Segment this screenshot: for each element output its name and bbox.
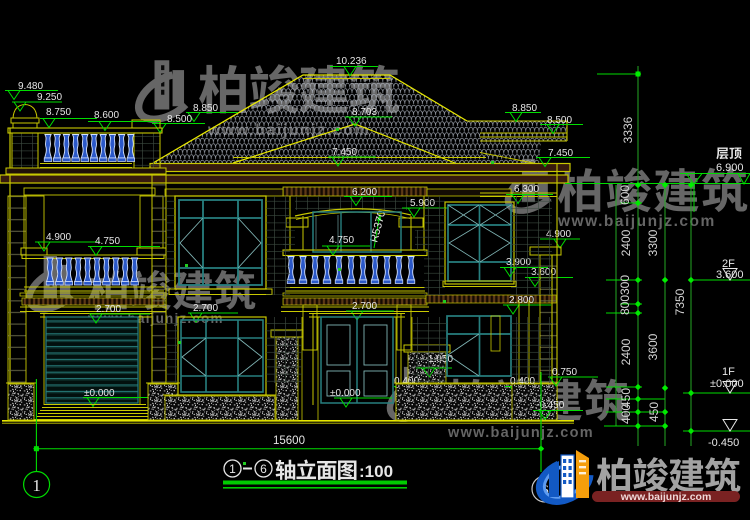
svg-text:2.800: 2.800 (509, 295, 534, 306)
svg-text:±0.000: ±0.000 (84, 388, 115, 399)
svg-text:9.250: 9.250 (37, 92, 62, 103)
svg-text:±0.000: ±0.000 (710, 378, 744, 390)
svg-text:2.700: 2.700 (96, 304, 121, 315)
svg-text:2.700: 2.700 (352, 301, 377, 312)
svg-text:3.600: 3.600 (716, 269, 744, 281)
svg-text:±0.000: ±0.000 (330, 388, 361, 399)
svg-text:1: 1 (229, 462, 236, 476)
svg-text:www.baijunjz.com: www.baijunjz.com (447, 425, 594, 441)
svg-text:1F: 1F (722, 366, 735, 378)
svg-text:3336: 3336 (621, 116, 635, 143)
svg-text:8.750: 8.750 (46, 107, 71, 118)
svg-text:-0.450: -0.450 (708, 437, 739, 449)
svg-text:8.500: 8.500 (167, 114, 192, 125)
svg-text:400: 400 (619, 404, 633, 424)
svg-text:4.900: 4.900 (46, 232, 71, 243)
svg-text:0.750: 0.750 (552, 367, 577, 378)
svg-text:3300: 3300 (646, 229, 660, 256)
svg-text:600: 600 (618, 185, 632, 205)
svg-text:450: 450 (647, 402, 661, 422)
svg-text:8.850: 8.850 (512, 103, 537, 114)
svg-text:6.300: 6.300 (514, 184, 539, 195)
svg-text:800300: 800300 (618, 275, 632, 315)
svg-text:9.480: 9.480 (18, 81, 43, 92)
svg-text:8.850: 8.850 (193, 103, 218, 114)
svg-text:4.750: 4.750 (329, 235, 354, 246)
svg-text:7.450: 7.450 (548, 148, 573, 159)
svg-text:1: 1 (32, 476, 41, 495)
svg-text:-0.450: -0.450 (536, 400, 565, 411)
svg-text:3600: 3600 (646, 333, 660, 360)
svg-text:www.baijunjz.com: www.baijunjz.com (557, 213, 716, 230)
svg-text:8.600: 8.600 (94, 110, 119, 121)
svg-text:8.500: 8.500 (547, 115, 572, 126)
svg-text:7.450: 7.450 (332, 147, 357, 158)
svg-text:2400: 2400 (619, 229, 633, 256)
svg-text:8.703: 8.703 (352, 107, 377, 118)
svg-text:7350: 7350 (673, 288, 687, 315)
svg-text:10.236: 10.236 (336, 56, 367, 67)
svg-text:6.200: 6.200 (352, 187, 377, 198)
svg-text:www.baijunjz.com: www.baijunjz.com (620, 491, 712, 503)
svg-text:2400: 2400 (619, 338, 633, 365)
svg-text:6: 6 (260, 462, 267, 476)
svg-text:6.900: 6.900 (716, 162, 744, 174)
svg-text::100: :100 (359, 462, 393, 481)
svg-text:15600: 15600 (273, 435, 305, 447)
svg-text:2.700: 2.700 (193, 303, 218, 314)
svg-text:4.750: 4.750 (95, 236, 120, 247)
